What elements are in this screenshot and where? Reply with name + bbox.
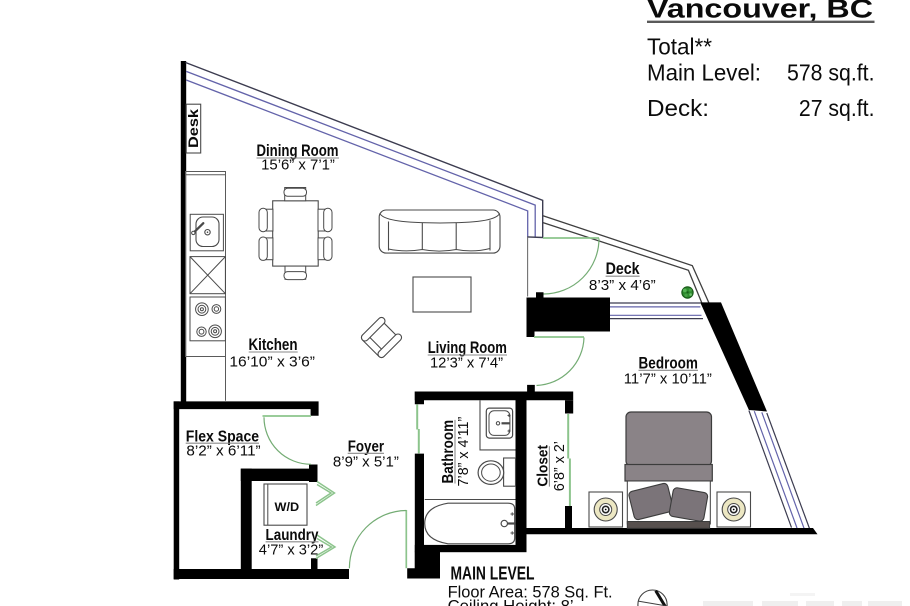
svg-text:12’3” x 7’4”: 12’3” x 7’4” (430, 354, 503, 371)
svg-text:4’7” x 3’2”: 4’7” x 3’2” (259, 542, 323, 559)
svg-text:Desk: Desk (186, 108, 201, 148)
svg-text:7’8” x 4’11”: 7’8” x 4’11” (455, 417, 472, 487)
svg-text:Main Level:: Main Level: (647, 60, 761, 86)
svg-text:15’6” x 7’1”: 15’6” x 7’1” (261, 157, 335, 174)
svg-text:8’2” x 6’11”: 8’2” x 6’11” (186, 442, 260, 459)
svg-text:Deck:: Deck: (647, 95, 709, 121)
svg-text:578 sq.ft.: 578 sq.ft. (787, 60, 875, 86)
svg-text:8’3” x 4’6”: 8’3” x 4’6” (589, 277, 656, 294)
svg-text:27 sq.ft.: 27 sq.ft. (799, 95, 875, 121)
svg-text:Ceiling Height: 8’: Ceiling Height: 8’ (448, 598, 574, 606)
svg-text:W/D: W/D (275, 502, 300, 514)
svg-text:8’9” x 5’1”: 8’9” x 5’1” (333, 454, 399, 471)
svg-text:Vancouver, BC: Vancouver, BC (647, 0, 873, 24)
svg-text:16’10” x 3’6”: 16’10” x 3’6” (229, 354, 315, 371)
svg-text:MAIN LEVEL: MAIN LEVEL (451, 564, 535, 584)
svg-text:Deck: Deck (606, 259, 640, 278)
svg-text:11’7” x 10’11”: 11’7” x 10’11” (624, 370, 712, 387)
svg-text:6’8” x 2’: 6’8” x 2’ (552, 441, 568, 491)
svg-text:Kitchen: Kitchen (249, 335, 298, 354)
svg-text:Total**: Total** (647, 34, 712, 60)
